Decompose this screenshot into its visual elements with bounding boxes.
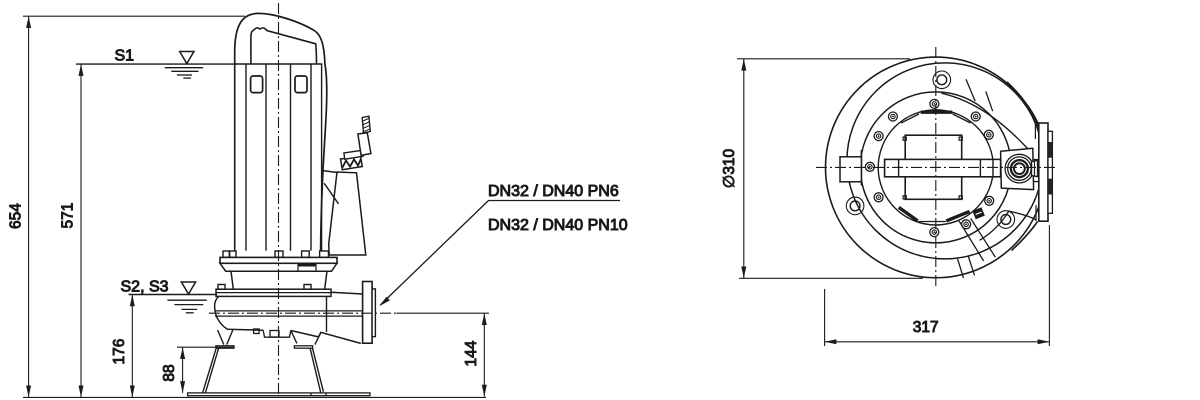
svg-text:∅310: ∅310 [721,148,738,188]
svg-text:144: 144 [463,340,480,366]
svg-text:S1: S1 [115,48,135,65]
svg-text:571: 571 [60,203,77,229]
svg-text:DN32 / DN40 PN6: DN32 / DN40 PN6 [488,183,619,200]
svg-text:DN32 / DN40 PN10: DN32 / DN40 PN10 [488,217,628,234]
svg-text:317: 317 [913,319,939,336]
svg-text:176: 176 [111,339,128,365]
svg-text:S2, S3: S2, S3 [121,279,169,296]
svg-text:88: 88 [161,364,178,381]
svg-text:654: 654 [8,203,25,229]
